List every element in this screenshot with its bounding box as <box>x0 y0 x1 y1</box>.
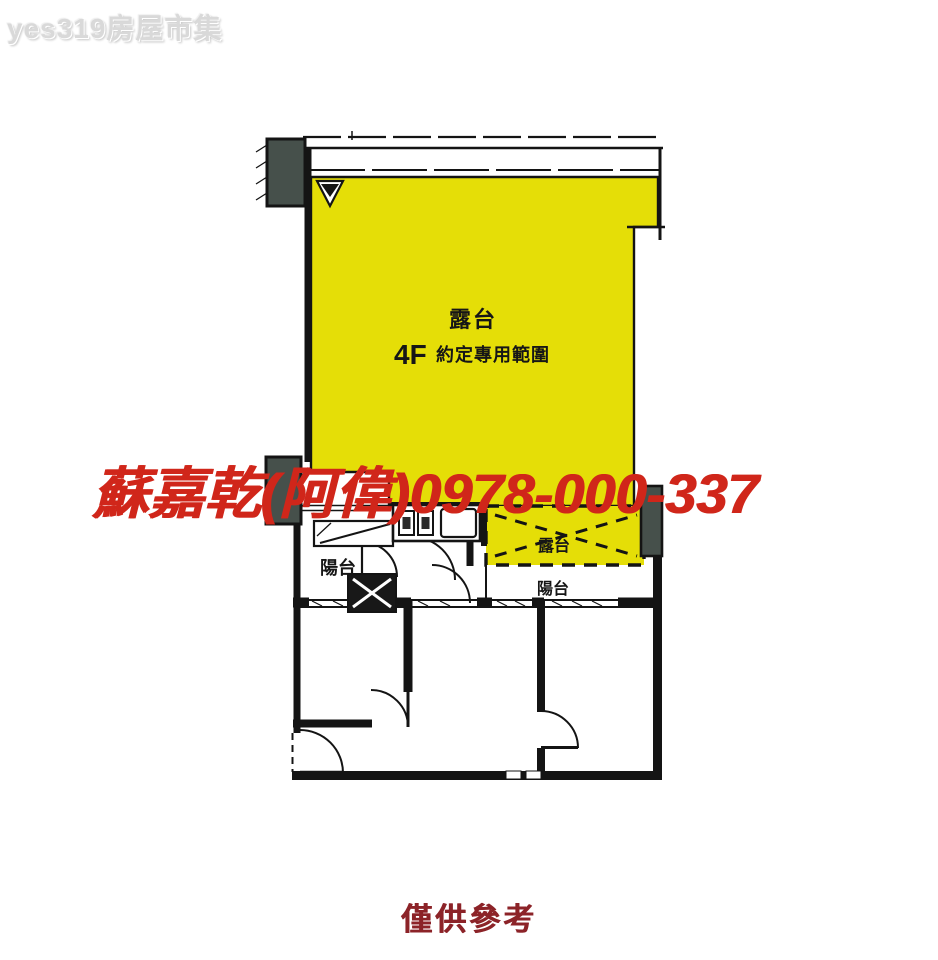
label-floor-tag: 4F <box>394 339 427 370</box>
label-exclusive-use: 約定專用範圍 <box>436 344 550 365</box>
label-small-terrace: 露台 <box>538 536 570 555</box>
label-right-balcony: 陽台 <box>537 579 569 598</box>
label-main-terrace: 露台 <box>449 307 497 332</box>
disclaimer-text: 僅供參考 <box>0 894 938 939</box>
agent-watermark: 蘇嘉乾(阿偉)0978-000-337 <box>92 449 758 530</box>
label-left-balcony: 陽台 <box>320 557 356 578</box>
listing-floorplan-image: yes319房屋市集 <box>0 0 938 960</box>
